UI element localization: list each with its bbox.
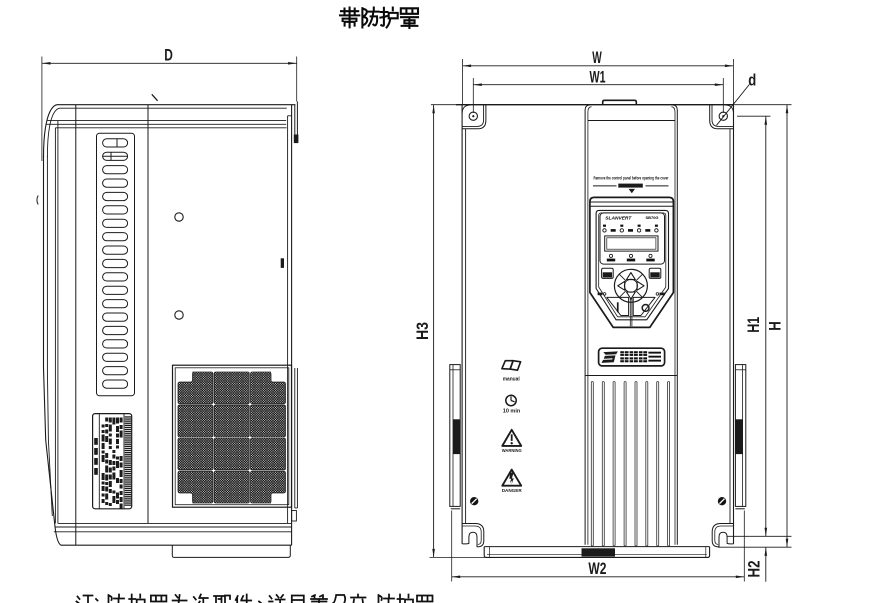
svg-text:H: H	[766, 321, 785, 331]
svg-text:SB70G: SB70G	[646, 216, 659, 220]
svg-text:d: d	[748, 70, 756, 89]
svg-text:H1: H1	[744, 317, 763, 333]
svg-text:H2: H2	[745, 561, 764, 578]
svg-text:W2: W2	[588, 559, 606, 578]
svg-text:DANGER: DANGER	[502, 488, 523, 494]
svg-text:manual: manual	[503, 377, 520, 383]
svg-text:Remove the control panel befor: Remove the control panel before opening …	[594, 176, 669, 181]
svg-text:SLANVERT: SLANVERT	[605, 216, 632, 221]
svg-text:10 min: 10 min	[503, 409, 521, 415]
svg-text:H3: H3	[413, 322, 432, 340]
svg-text:D: D	[164, 46, 173, 65]
svg-text:W: W	[592, 48, 602, 67]
svg-text:W1: W1	[590, 68, 606, 87]
svg-text:WARNING: WARNING	[502, 448, 522, 453]
